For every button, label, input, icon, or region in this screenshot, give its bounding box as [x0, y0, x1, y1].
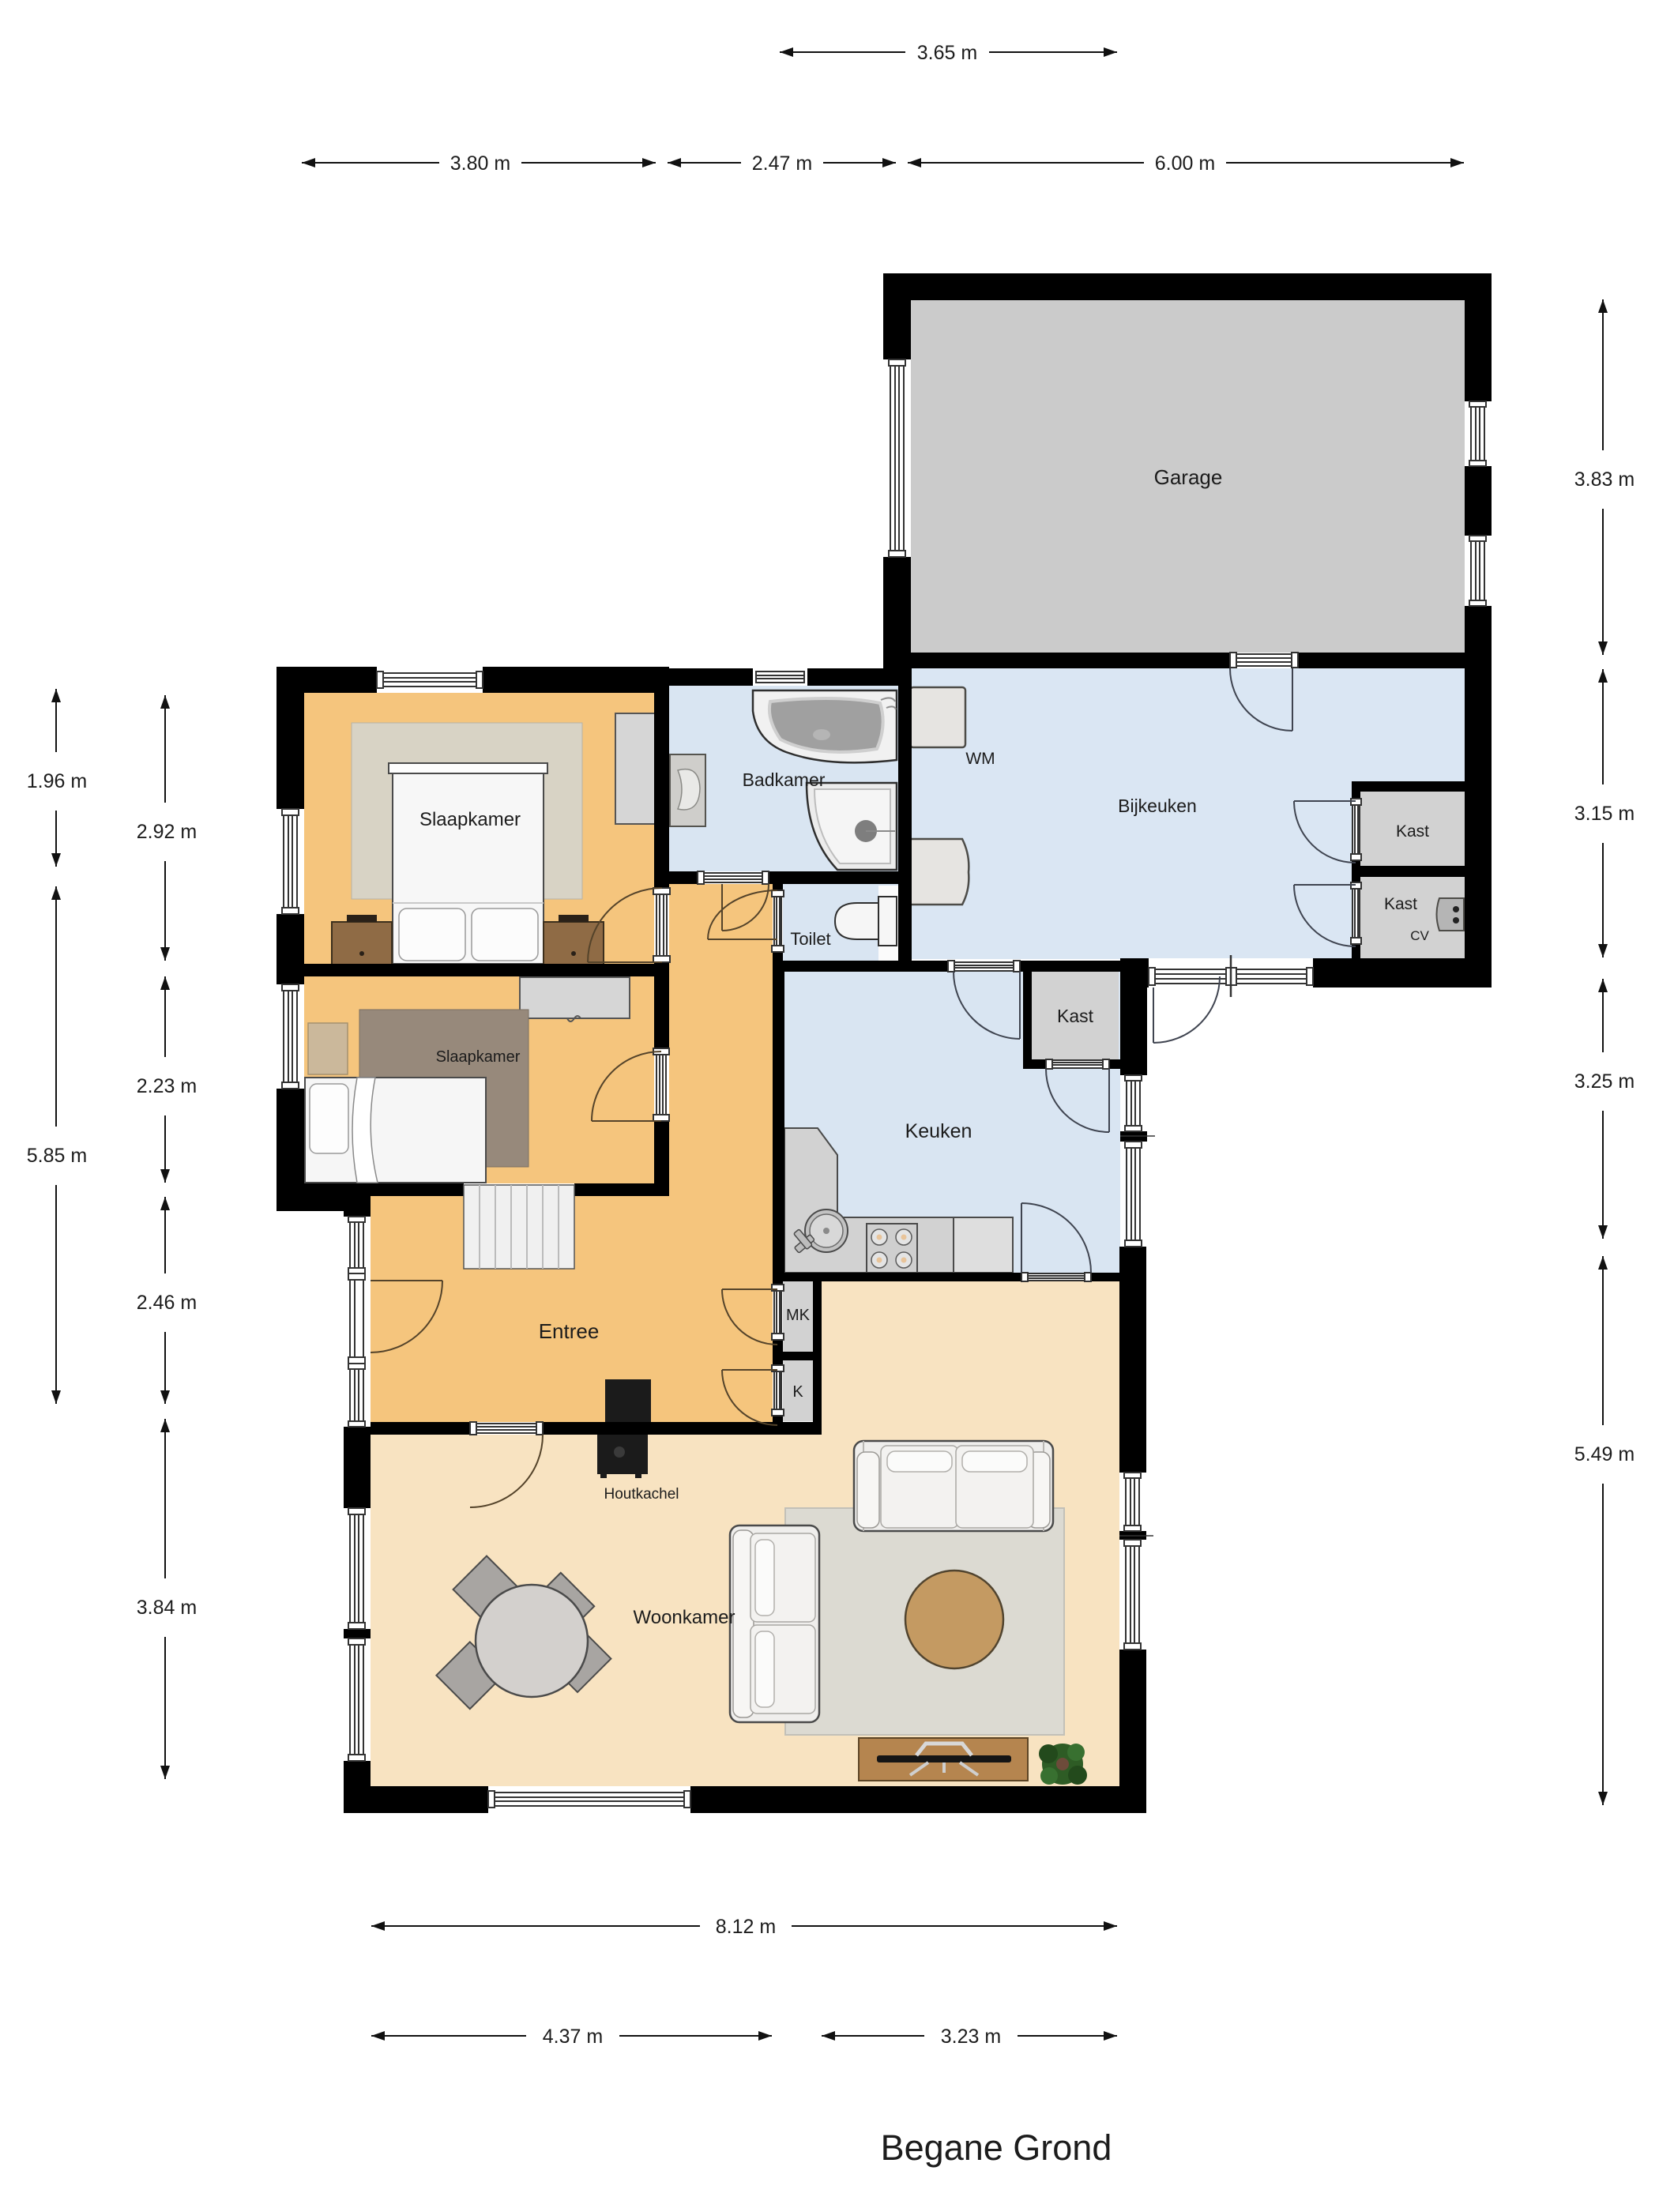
svg-text:2.47 m: 2.47 m — [752, 152, 812, 175]
svg-text:3.83 m: 3.83 m — [1574, 468, 1635, 491]
svg-text:1.96 m: 1.96 m — [27, 770, 87, 792]
svg-text:3.23 m: 3.23 m — [941, 2026, 1001, 2048]
svg-text:Bijkeuken: Bijkeuken — [1118, 796, 1197, 816]
svg-text:Kast: Kast — [1057, 1006, 1094, 1026]
svg-text:3.80 m: 3.80 m — [450, 152, 510, 175]
svg-text:3.15 m: 3.15 m — [1574, 803, 1635, 825]
svg-text:5.85 m: 5.85 m — [27, 1145, 87, 1167]
svg-text:Garage: Garage — [1154, 465, 1223, 489]
svg-text:2.46 m: 2.46 m — [137, 1292, 197, 1314]
svg-text:Entree: Entree — [539, 1319, 600, 1343]
svg-text:2.92 m: 2.92 m — [137, 821, 197, 843]
svg-text:MK: MK — [786, 1307, 811, 1324]
svg-text:Slaapkamer: Slaapkamer — [436, 1048, 521, 1066]
svg-text:Toilet: Toilet — [790, 929, 830, 949]
svg-text:Slaapkamer: Slaapkamer — [419, 809, 521, 830]
svg-text:5.49 m: 5.49 m — [1574, 1443, 1635, 1465]
svg-text:WM: WM — [965, 750, 995, 768]
svg-text:Woonkamer: Woonkamer — [634, 1607, 735, 1628]
svg-text:Kast: Kast — [1396, 822, 1429, 841]
svg-text:3.25 m: 3.25 m — [1574, 1070, 1635, 1093]
svg-text:4.37 m: 4.37 m — [543, 2026, 603, 2048]
svg-text:Kast: Kast — [1384, 895, 1417, 913]
svg-text:8.12 m: 8.12 m — [716, 1916, 776, 1938]
svg-text:CV: CV — [1410, 928, 1429, 943]
svg-text:Keuken: Keuken — [905, 1120, 972, 1142]
svg-text:6.00 m: 6.00 m — [1155, 152, 1215, 175]
svg-text:3.84 m: 3.84 m — [137, 1597, 197, 1619]
svg-text:K: K — [792, 1383, 803, 1401]
svg-text:3.65 m: 3.65 m — [917, 42, 977, 64]
svg-text:Badkamer: Badkamer — [743, 769, 826, 790]
svg-text:2.23 m: 2.23 m — [137, 1075, 197, 1097]
svg-text:Houtkachel: Houtkachel — [604, 1486, 679, 1503]
svg-text:Begane Grond: Begane Grond — [881, 2127, 1112, 2168]
